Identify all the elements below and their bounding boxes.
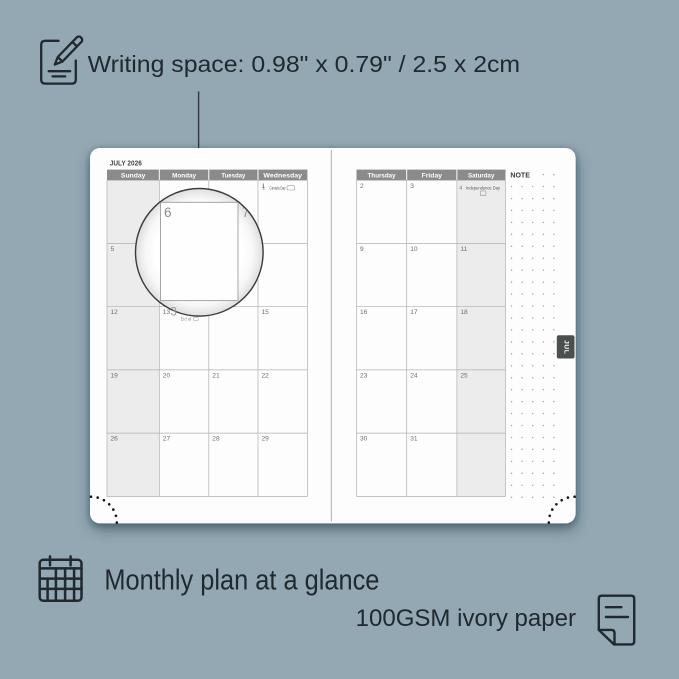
svg-text:Monthly plan at a glance: Monthly plan at a glance (104, 565, 379, 597)
svg-text:18: 18 (460, 309, 468, 316)
svg-text:24: 24 (410, 372, 418, 379)
svg-text:Saturday: Saturday (468, 173, 495, 180)
svg-text:Sunday: Sunday (121, 173, 146, 180)
svg-text:19: 19 (111, 372, 119, 379)
svg-text:JULY 2026: JULY 2026 (110, 161, 142, 168)
svg-text:31: 31 (410, 436, 418, 443)
svg-text:Independence Day: Independence Day (466, 185, 501, 190)
svg-text:5: 5 (111, 246, 115, 253)
svg-text:1: 1 (262, 186, 265, 192)
svg-text:23: 23 (360, 372, 368, 379)
svg-text:6: 6 (164, 205, 172, 220)
svg-text:16: 16 (360, 309, 368, 316)
svg-text:15: 15 (262, 309, 270, 316)
svg-text:2: 2 (360, 183, 364, 190)
svg-text:Wednesday: Wednesday (263, 173, 302, 180)
svg-text:27: 27 (163, 436, 171, 443)
svg-text:28: 28 (212, 436, 220, 443)
svg-text:Friday: Friday (422, 173, 443, 180)
svg-text:9: 9 (360, 246, 364, 253)
svg-text:JUL: JUL (562, 340, 569, 354)
svg-text:30: 30 (360, 436, 368, 443)
svg-text:21: 21 (212, 372, 220, 379)
svg-text:17: 17 (410, 309, 418, 316)
svg-text:Thursday: Thursday (368, 173, 396, 180)
svg-text:4: 4 (459, 186, 462, 192)
svg-text:3: 3 (170, 304, 177, 318)
svg-text:100GSM ivory paper: 100GSM ivory paper (356, 605, 576, 632)
svg-text:11: 11 (460, 246, 467, 253)
svg-text:20: 20 (163, 372, 171, 379)
svg-text:Eid al: Eid al (181, 317, 192, 322)
svg-text:NOTE: NOTE (510, 170, 530, 179)
svg-text:22: 22 (262, 372, 270, 379)
svg-text:Canada Day: Canada Day (270, 185, 287, 190)
svg-text:Writing space: 0.98" x 0.79" /: Writing space: 0.98" x 0.79" / 2.5 x 2cm (88, 51, 520, 77)
svg-text:12: 12 (111, 309, 119, 316)
svg-text:Tuesday: Tuesday (221, 173, 245, 180)
svg-text:25: 25 (460, 372, 468, 379)
svg-text:Monday: Monday (172, 173, 196, 180)
svg-text:29: 29 (262, 436, 270, 443)
svg-text:3: 3 (410, 183, 414, 190)
svg-text:26: 26 (111, 436, 119, 443)
svg-text:10: 10 (410, 246, 418, 253)
